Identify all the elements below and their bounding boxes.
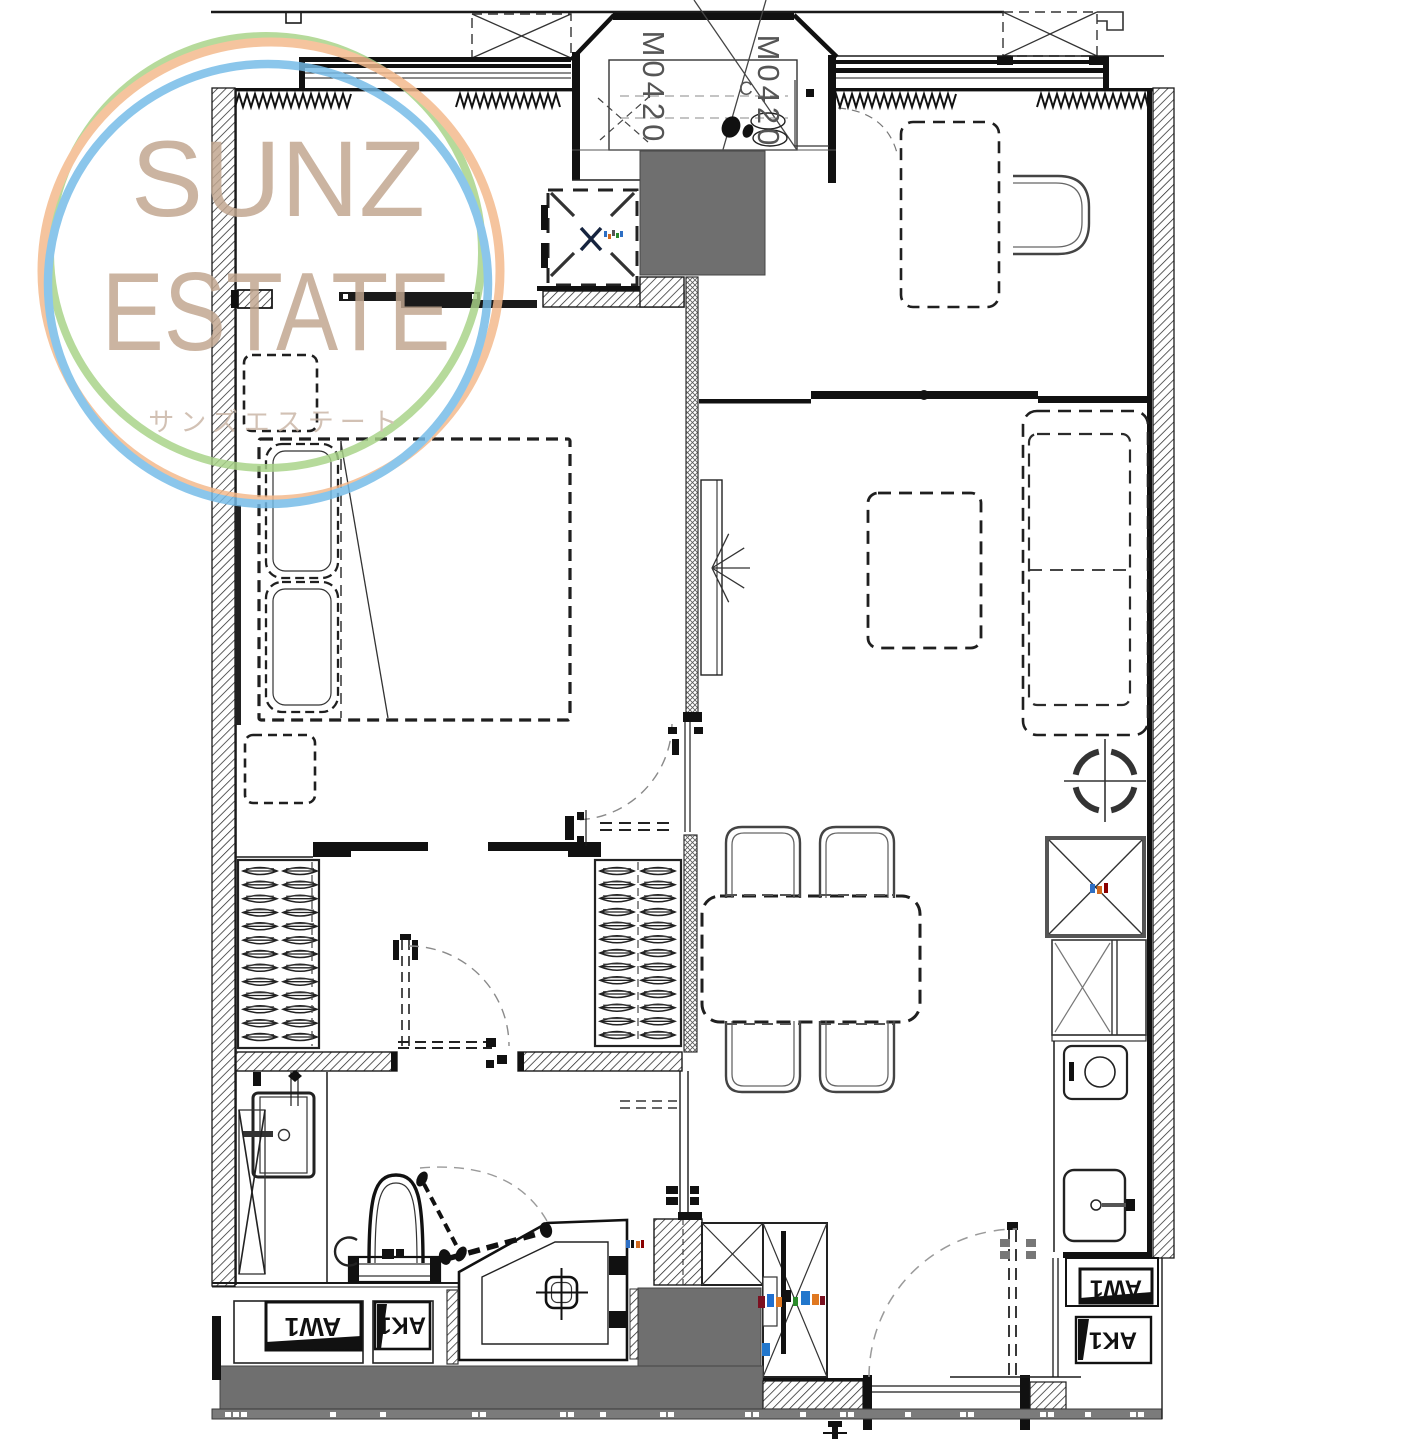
svg-text:サンズエステート: サンズエステート [148,407,403,437]
svg-text:M0420: M0420 [636,31,671,146]
svg-text:ESTATE: ESTATE [102,249,451,374]
svg-text:AW1: AW1 [285,1312,341,1342]
svg-text:SUNZ: SUNZ [131,118,425,239]
svg-text:AK1: AK1 [1089,1327,1137,1354]
svg-text:M0420: M0420 [751,35,786,150]
svg-text:C: C [739,79,753,100]
